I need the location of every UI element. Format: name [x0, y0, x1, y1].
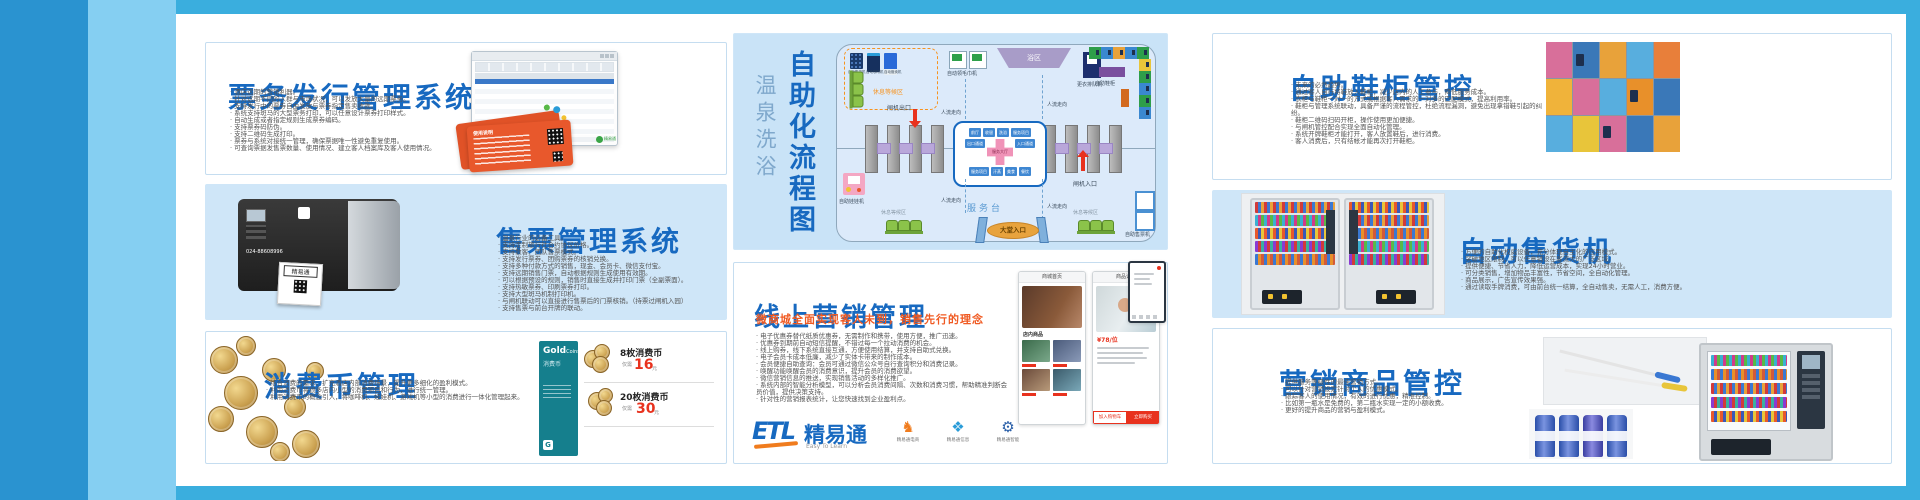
bottle-icon — [1583, 415, 1603, 457]
waiting-area-box: 自动售货机 自动咖啡机 自动贩卖机 休息等候区 — [844, 48, 938, 110]
waiting-area-label: 休息等候区 — [881, 209, 906, 216]
panel-shoe: 自助鞋柜管控 未来的必然趋势。通过客人自行将鞋放入鞋柜，减少店内的人工参与，降低… — [1212, 33, 1892, 180]
vending-slot — [1376, 290, 1416, 304]
product-thumbs — [1022, 369, 1082, 396]
lobby-entrance-label: 大堂入口 — [1000, 226, 1026, 234]
vending-slot — [1711, 439, 1771, 455]
qr-code-small-icon — [552, 151, 563, 162]
locker-photo — [1546, 42, 1680, 152]
flow-path — [965, 179, 966, 213]
etl-logo-block: ETL 精易通 Easy To Learn ♞ 精易通电商 ❖ 精易通信息 ⚙ … — [752, 415, 1012, 457]
green-logo-icon — [596, 136, 603, 143]
printer-side-panel — [348, 201, 400, 289]
hub-button: 餐饮 — [1019, 167, 1031, 176]
lobby-entrance: 大堂入口 — [977, 217, 1047, 243]
app-screen-home: 商城首页 店内商品 — [1018, 271, 1086, 425]
coin-offers: 8枚消费币 仅需 16 元 20枚消费币 仅需 30 元 — [584, 344, 719, 456]
toolbar — [475, 62, 614, 72]
gate-out-label: 闸机出口 — [887, 103, 911, 112]
printer-brand-icon — [298, 207, 310, 219]
label-brand-text: 精易通 — [283, 265, 318, 278]
vending-photo — [1241, 193, 1445, 315]
locker-keypad-icon — [1603, 126, 1611, 138]
gate-in-label: 闸机入口 — [1073, 179, 1097, 188]
vending-machine-icon — [850, 53, 863, 69]
bench-icon — [1077, 221, 1115, 234]
flow-dir-label: 人流走向 — [1047, 101, 1067, 108]
printer-phone-text: 024-88608996 — [246, 249, 283, 255]
service-hall-icon: 服务大厅 — [987, 139, 1013, 165]
flow-room: 自动售货机 自动咖啡机 自动贩卖机 休息等候区 自动领毛巾机 浴区 更衣排队机 — [836, 44, 1156, 242]
ticket-card-title: 使用说明 — [473, 129, 493, 137]
vending-slot — [1262, 290, 1302, 304]
vending-glass — [1707, 351, 1791, 431]
bullet-item: 支持售票与前台开牌的联动。 — [498, 305, 723, 312]
flow-dir-label: 人流走向 — [941, 197, 961, 204]
bullet-item: 通过读取手牌消费，可由前台统一结算，全自动售卖，无需人工，消费方便。 — [1461, 284, 1881, 291]
product-thumb — [1022, 369, 1050, 396]
ticket-machine-label: 自助售票机 — [1125, 231, 1150, 238]
vending-screen-column — [1349, 210, 1358, 254]
ticket-machine-icon — [1135, 191, 1155, 211]
bullet-list: 方便的自助化权威设备，充分体现自主化的应用模式。突破地区限制，可以任意铺设在客流… — [1461, 249, 1881, 291]
gate-in-arrow-icon — [1081, 157, 1085, 171]
offer-unit: 元 — [654, 409, 659, 416]
bench-icon — [885, 221, 923, 234]
product-caption: 精易通智能 — [980, 437, 1036, 443]
printed-label: 精易通 — [277, 262, 323, 306]
service-desk-label: 服务台 — [967, 201, 1003, 214]
bath-area-label: 浴区 — [1027, 54, 1041, 62]
hub-row-mid: 出口通道 服务大厅 入口通道 — [957, 139, 1043, 165]
product-logo: ♞ 精易通电商 — [880, 417, 936, 443]
gate-out-arrow-icon — [913, 109, 917, 121]
offer-divider — [584, 426, 714, 427]
hub-row-top: 前厅收银洗浴服务项目 — [957, 128, 1043, 137]
machine-label: 自动咖啡机 — [866, 70, 884, 75]
mini-phone-mockup — [1128, 261, 1166, 323]
ticket-card-textlines — [473, 134, 531, 166]
panel-ticket-issue: 票务发行管理系统 酒店远期的营销利器。针对远期不同的人群与市场状况，可以发放大量… — [205, 42, 727, 175]
ticket-card-front: 使用说明 — [467, 119, 574, 172]
bullet-list: 未来的必然趋势。通过客人自行将鞋放入鞋柜，减少店内的人工参与，降低服务成本。衣柜… — [1291, 82, 1551, 145]
printer-screen — [246, 209, 266, 222]
flow-path — [965, 79, 966, 119]
coin-card-logo-icon: G — [543, 440, 553, 450]
bullet-list: 酒店远期的营销利器。针对远期不同的人群与市场状况，可以发放大量的远期票务。支持发… — [230, 89, 465, 152]
bullet-item: 可查询票据发售票数量、使用情况、建立客人档案库及客人使用情况。 — [230, 145, 465, 152]
panel-vending: 自动售货机 方便的自助化权威设备，充分体现自主化的应用模式。突破地区限制，可以任… — [1212, 190, 1892, 318]
bullet-item: 鞋柜与管理系统联动，具备严谨的流程管控，杜绝流程漏洞，避免出现拿错鞋引起的纠纷。 — [1291, 103, 1551, 117]
hub-button: 汗蒸 — [991, 167, 1003, 176]
claw-machine-icon — [843, 173, 865, 195]
lobby-entrance-label-pill: 大堂入口 — [987, 222, 1039, 239]
panel-ticket-sale: 售票管理系统 温泉行业的必备工具。支持定制旅行社合约协议价格。支持散客、团队售票… — [205, 184, 727, 320]
offer-price: 16 — [634, 357, 653, 373]
printer-buttons — [246, 225, 266, 239]
coin-card-gold: Gold — [543, 346, 566, 356]
hub-button: 前厅 — [969, 128, 981, 137]
bottles-photo — [1529, 409, 1633, 459]
panel-goods: 营销商品管控 提供服务等级性的最佳营销方式。可以针对营销设定针对个人的优惠模式。… — [1212, 328, 1892, 464]
towel-machine-icon — [949, 51, 967, 69]
hub-button: 出口通道 — [965, 139, 985, 148]
bottle-icon — [1559, 415, 1579, 457]
price-text: ¥78/位 — [1097, 335, 1155, 344]
qr-code-icon — [547, 128, 564, 145]
marketing-subtitle: 微商城全面实现客人未到，销售先行的理念 — [756, 311, 984, 327]
offer-need: 仅需 — [622, 361, 632, 368]
horse-icon: ♞ — [880, 417, 936, 437]
coin-card-coins: Coins — [566, 349, 580, 355]
product-thumbs — [1022, 340, 1082, 367]
service-hub: 前厅收银洗浴服务项目 出口通道 服务大厅 入口通道 服务项目汗蒸美食餐饮 — [953, 121, 1047, 187]
label-qr-icon — [293, 280, 307, 294]
shoe-cabinet-label: 自助鞋柜 — [1095, 80, 1115, 87]
window-controls-icon — [600, 54, 614, 58]
product-thumb — [1022, 340, 1050, 367]
vending-keypad-panel — [1797, 351, 1825, 429]
locker-keypad-icon — [1576, 54, 1584, 66]
vending-machine-left — [1250, 198, 1340, 310]
flow-dir-label: 人流走向 — [1047, 203, 1067, 210]
vending-machine-right — [1344, 198, 1434, 310]
service-hall-label: 服务大厅 — [992, 149, 1008, 155]
offer-divider — [584, 382, 714, 383]
hub-button: 收银 — [983, 128, 995, 137]
product-thumb — [1053, 369, 1081, 396]
flow-path — [1042, 75, 1043, 119]
left-band-light — [88, 0, 176, 500]
shoe-locker-row — [1089, 47, 1149, 59]
add-cart-button[interactable]: 加入购物车 — [1093, 411, 1127, 424]
waiting-area-label: 休息等候区 — [873, 87, 903, 96]
locker-keypad-icon — [1630, 90, 1638, 102]
coin-card-textlines — [543, 385, 571, 399]
hub-button: 服务项目 — [969, 167, 989, 176]
ticket-machine-icon — [1135, 211, 1155, 231]
panel-flowchart: 温泉洗浴 自助化流程图 自动售货机 自动咖啡机 自动贩卖机 休息等候区 自动领毛… — [733, 33, 1168, 250]
screenshot-logo-text: 精易通 — [604, 136, 616, 142]
cube-icon: ❖ — [930, 417, 986, 437]
machine-label: 自动贩卖机 — [884, 70, 902, 75]
bottle-icon — [1535, 415, 1555, 457]
bullet-item: 客人消费后，只有结帐才能再次打开鞋柜。 — [1291, 138, 1551, 145]
towel-machine-icon — [969, 51, 987, 69]
product-caption: 精易通信息 — [930, 437, 986, 443]
hub-button: 洗浴 — [997, 128, 1009, 137]
flow-title-bold: 自助化流程图 — [780, 50, 819, 236]
waiting-area-label: 休息等候区 — [1073, 209, 1098, 216]
towel-machine-label: 自动领毛巾机 — [947, 70, 977, 77]
window-titlebar — [472, 52, 617, 61]
product-caption: 精易通电商 — [880, 437, 936, 443]
flow-dir-label: 人流走向 — [941, 109, 961, 116]
orange-locker-icon — [1121, 89, 1129, 107]
detail-bottom-bar: 加入购物车 立即购买 — [1093, 411, 1159, 424]
small-vending-photo — [1699, 343, 1833, 461]
panel-coin: 消费币管理 结合消费的需求，扩充酒店内部消费场景，提升更多细化的盈利模式。利用消… — [205, 331, 727, 464]
bottle-icon — [1607, 415, 1627, 457]
offer-price: 30 — [636, 401, 655, 417]
offer-unit: 元 — [652, 365, 657, 372]
offer-need: 仅需 — [622, 405, 632, 412]
shoe-cabinet-icon — [1099, 67, 1125, 77]
bullet-item: 系统内部的智能分析模型，可以分析会员消费间隔、次数和消费习惯，帮助精准判断会员价… — [756, 382, 1008, 396]
lobby-pillar — [975, 217, 988, 243]
bullet-item: 利用消费币的概念引入，将咖啡机、娃娃机、游戏机等小型的消费进行一体化管理起来。 — [266, 394, 566, 401]
bullet-list: 温泉行业的必备工具。支持定制旅行社合约协议价格。支持散客、团队售票模式。支持发行… — [498, 235, 723, 312]
hub-button: 服务项目 — [1011, 128, 1031, 137]
vending-screen-column — [1326, 210, 1335, 254]
massage-photo — [1022, 286, 1082, 328]
bullet-list: 电子优惠券替代纸质优惠券，无需制作和携带，使用方便，推广迅速。优惠券到期前自动短… — [756, 333, 1008, 403]
flow-title-light: 温泉洗浴 — [750, 74, 780, 182]
bench-icon — [850, 71, 863, 109]
poster: 票务发行管理系统 酒店远期的营销利器。针对远期不同的人群与市场状况，可以发放大量… — [0, 0, 1920, 500]
bullet-item: 针对性的营销报表统计，让您快速找到企业盈利点。 — [756, 396, 1008, 403]
bullet-list: 提供服务等级性的最佳营销方式。可以针对营销设定针对个人的优惠模式。跟踪客人的使用… — [1281, 379, 1531, 414]
brand-slogan: Easy To Learn — [806, 443, 847, 450]
app-screen-title: 商城首页 — [1019, 272, 1085, 283]
etl-logo-text: ETL — [752, 417, 794, 445]
hub-button: 美食 — [1005, 167, 1017, 176]
hub-button: 入口通道 — [1015, 139, 1035, 148]
coin-card-sub: 消费币 — [539, 357, 578, 370]
bath-area: 浴区 — [997, 48, 1071, 68]
bullet-list: 结合消费的需求，扩充酒店内部消费场景，提升更多细化的盈利模式。利用消费币将很多店… — [266, 380, 566, 401]
printer-photo: 024-88608996 精易通 — [220, 191, 426, 313]
buy-now-button[interactable]: 立即购买 — [1127, 411, 1159, 424]
flow-path — [1042, 179, 1043, 219]
bullet-item: 更好的提升商品的营销与盈利模式。 — [1281, 407, 1531, 414]
shoe-locker-col — [1139, 59, 1151, 119]
coin-card: GoldCoins 消费币 G — [539, 341, 578, 456]
product-thumb — [1053, 340, 1081, 367]
claw-machine-label: 自助娃娃机 — [839, 198, 864, 205]
hub-row-bottom: 服务项目汗蒸美食餐饮 — [957, 167, 1043, 176]
left-band-dark — [0, 0, 88, 500]
swabs-photo — [1543, 337, 1707, 405]
panel-marketing: 线上营销管理 微商城全面实现客人未到，销售先行的理念 电子优惠券替代纸质优惠券，… — [733, 262, 1168, 464]
shop-section-label: 店内商品 — [1023, 331, 1081, 338]
product-logo: ❖ 精易通信息 — [930, 417, 986, 443]
